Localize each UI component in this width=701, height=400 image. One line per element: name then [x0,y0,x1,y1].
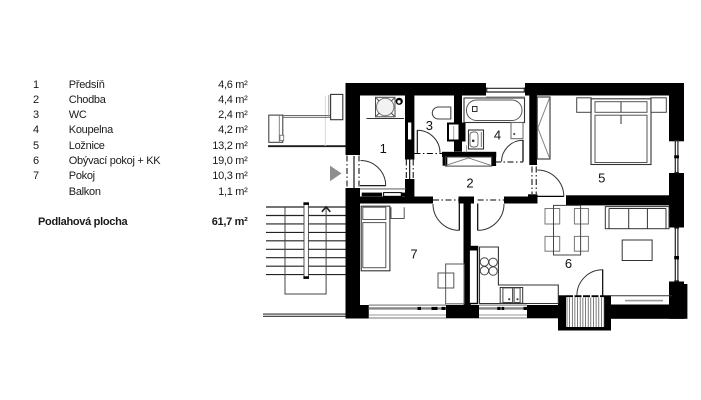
svg-text:1: 1 [380,141,387,156]
svg-text:7: 7 [410,247,417,262]
svg-text:6: 6 [565,256,572,271]
svg-text:3: 3 [426,118,433,133]
svg-text:2: 2 [466,176,473,191]
svg-text:4: 4 [494,128,501,143]
svg-text:5: 5 [598,171,605,186]
